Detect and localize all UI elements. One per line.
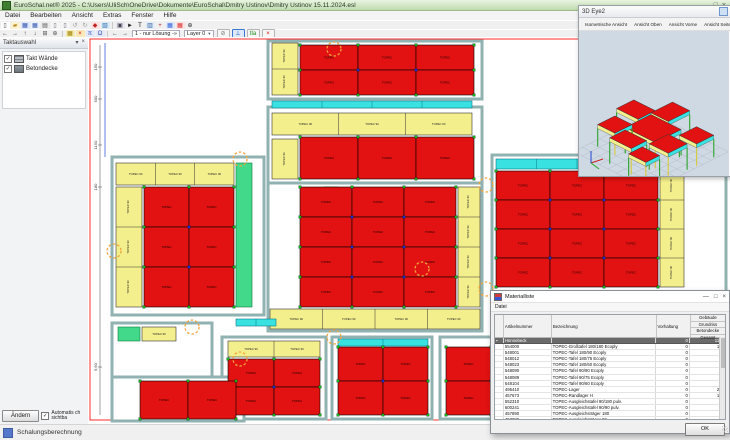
material-list-dialog: Materialliste — □ × Datei Artikelnummer … (490, 290, 730, 434)
svg-text:TOPEC: TOPEC (425, 290, 436, 294)
node-marker (351, 216, 354, 219)
node-marker (139, 418, 142, 421)
node-marker (603, 199, 606, 202)
edge-panel-strip[interactable]: TOPEC 90TOPEC 90 (272, 43, 298, 95)
view-button-3[interactable]: Ansicht Seite (701, 20, 730, 29)
node-marker (357, 44, 360, 47)
dialog-menu-datei[interactable]: Datei (495, 304, 507, 310)
node-marker (299, 136, 302, 139)
svg-text:TOPEC: TOPEC (440, 156, 451, 160)
svg-text:TOPEC: TOPEC (463, 362, 474, 366)
node-marker (351, 306, 354, 309)
edge-panel-strip[interactable]: TOPEC 90TOPEC 90TOPEC 90TOPEC 90 (270, 309, 480, 329)
svg-text:TOPEC: TOPEC (518, 213, 529, 217)
svg-text:TOPEC 90: TOPEC 90 (395, 317, 409, 321)
filler-strip[interactable] (236, 319, 276, 326)
svg-text:TOPEC 90: TOPEC 90 (244, 347, 258, 351)
svg-text:TOPEC 90: TOPEC 90 (669, 265, 673, 279)
svg-text:TOPEC: TOPEC (400, 396, 411, 400)
node-marker (473, 94, 476, 97)
node-marker (188, 226, 191, 229)
wall-icon (14, 55, 24, 63)
node-marker (319, 358, 322, 361)
svg-text:1150: 1150 (93, 140, 98, 149)
close-icon[interactable]: × (81, 39, 85, 46)
menu-fenster[interactable]: Fenster (126, 12, 158, 19)
node-marker (233, 306, 236, 309)
table-row[interactable]: 457880TOPEC-Ausgleichsträger 90024 (495, 417, 725, 420)
resize-grip[interactable] (722, 426, 728, 432)
svg-text:TOPEC 90: TOPEC 90 (208, 172, 222, 176)
svg-text:150: 150 (93, 63, 98, 70)
edge-panel-strip[interactable]: TOPEC 90 (142, 327, 176, 341)
node-marker (473, 69, 476, 72)
node-marker (473, 44, 476, 47)
sidebar-item-slab[interactable]: ✓Betondecke (4, 64, 84, 74)
node-marker (233, 226, 236, 229)
node-marker (299, 178, 302, 181)
node-marker (357, 136, 360, 139)
menu-ansicht[interactable]: Ansicht (67, 12, 98, 19)
node-marker (351, 246, 354, 249)
node-marker (549, 228, 552, 231)
slab-icon (14, 65, 24, 73)
node-marker (657, 286, 660, 289)
edge-panel-strip[interactable]: TOPEC 90TOPEC 90TOPEC 90 (116, 187, 142, 307)
node-marker (549, 257, 552, 260)
node-marker (445, 380, 448, 383)
menu-bearbeiten[interactable]: Bearbeiten (25, 12, 66, 19)
node-marker (455, 246, 458, 249)
takt-panel: Taktauswahl ▾ × ✓Takt Wände✓Betondecke Ä… (0, 37, 89, 424)
node-marker (427, 380, 430, 383)
node-marker (319, 414, 322, 417)
filler-strip[interactable] (272, 101, 472, 108)
takt-panel-title: Taktauswahl (3, 40, 36, 46)
material-dialog-title: Materialliste (505, 294, 534, 300)
material-table-body: ▪Hünnebeck01195554000TOPEC-Großtafel 180… (495, 338, 725, 420)
slab-panel-grid[interactable]: TOPECTOPECTOPEC (299, 136, 476, 181)
dialog-maximize-button[interactable]: □ (714, 294, 718, 300)
node-marker (299, 246, 302, 249)
node-marker (403, 306, 406, 309)
svg-text:TOPEC: TOPEC (207, 398, 218, 402)
node-marker (357, 69, 360, 72)
node-marker (495, 170, 498, 173)
svg-text:TOPEC: TOPEC (161, 285, 172, 289)
view-button-2[interactable]: Ansicht Vorne (666, 20, 700, 29)
svg-text:TOPEC: TOPEC (572, 271, 583, 275)
edge-panel-strip[interactable]: TOPEC 90TOPEC 90TOPEC 90 (116, 163, 234, 185)
node-marker (143, 226, 146, 229)
svg-text:TOPEC: TOPEC (425, 200, 436, 204)
svg-text:TOPEC: TOPEC (382, 156, 393, 160)
svg-text:TOPEC: TOPEC (355, 362, 366, 366)
col-artikelnummer[interactable]: Artikelnummer (504, 315, 552, 337)
slab-panel-grid[interactable]: TOPECTOPEC (139, 380, 238, 421)
svg-text:TOPEC: TOPEC (400, 362, 411, 366)
takt-panel-header[interactable]: Taktauswahl ▾ × (0, 37, 88, 49)
material-dialog-icon (494, 293, 502, 301)
sidebar-item-wall[interactable]: ✓Takt Wände (4, 54, 84, 64)
svg-text:TOPEC: TOPEC (518, 184, 529, 188)
svg-text:TOPEC: TOPEC (321, 290, 332, 294)
svg-text:TOPEC: TOPEC (321, 260, 332, 264)
auto-visible-checkbox[interactable]: ✓ (41, 412, 49, 420)
node-marker (495, 228, 498, 231)
svg-text:TOPEC: TOPEC (161, 245, 172, 249)
node-marker (233, 186, 236, 189)
node-marker (227, 358, 230, 361)
node-marker (455, 306, 458, 309)
edge-panel-strip[interactable]: TOPEC 90TOPEC 90TOPEC 90 (272, 113, 472, 135)
node-marker (273, 386, 276, 389)
svg-text:TOPEC: TOPEC (324, 156, 335, 160)
node-marker (657, 199, 660, 202)
node-marker (143, 306, 146, 309)
svg-text:TOPEC 90: TOPEC 90 (152, 332, 166, 336)
node-marker (495, 199, 498, 202)
slab-panel-grid[interactable]: TOPECTOPECTOPECTOPECTOPECTOPEC (299, 44, 476, 97)
svg-text:TOPEC: TOPEC (321, 230, 332, 234)
dialog-minimize-button[interactable]: — (703, 294, 709, 300)
svg-text:TOPEC: TOPEC (382, 56, 393, 60)
edge-panel-strip[interactable]: TOPEC 90TOPEC 90TOPEC 90TOPEC 90 (458, 187, 480, 307)
node-marker (235, 380, 238, 383)
menu-datei[interactable]: Datei (0, 12, 25, 19)
node-marker (299, 306, 302, 309)
svg-text:TOPEC: TOPEC (246, 371, 257, 375)
auto-visible-label: Automatis ch sichtba (51, 411, 85, 422)
table-scrollbar[interactable] (719, 337, 725, 419)
node-marker (549, 170, 552, 173)
svg-text:TOPEC: TOPEC (206, 285, 217, 289)
takt-checkbox[interactable]: ✓ (4, 65, 12, 73)
node-marker (299, 44, 302, 47)
node-marker (319, 386, 322, 389)
svg-text:TOPEC 90: TOPEC 90 (365, 122, 379, 126)
viewer-3d-scene[interactable] (579, 31, 729, 176)
svg-text:TOPEC 90: TOPEC 90 (126, 200, 130, 214)
svg-text:TOPEC: TOPEC (373, 230, 384, 234)
svg-text:TOPEC 90: TOPEC 90 (669, 236, 673, 250)
node-marker (233, 266, 236, 269)
svg-text:TOPEC: TOPEC (355, 396, 366, 400)
pin-icon[interactable]: ▾ (75, 39, 78, 46)
node-marker (188, 306, 191, 309)
node-marker (382, 346, 385, 349)
node-marker (187, 418, 190, 421)
node-marker (657, 257, 660, 260)
node-marker (273, 358, 276, 361)
svg-text:TOPEC: TOPEC (572, 213, 583, 217)
svg-text:TOPEC: TOPEC (161, 205, 172, 209)
svg-text:TOPEC: TOPEC (324, 56, 335, 60)
svg-text:TOPEC: TOPEC (425, 230, 436, 234)
node-marker (657, 228, 660, 231)
node-marker (351, 186, 354, 189)
slab-panel-grid[interactable]: TOPECTOPECTOPECTOPECTOPECTOPECTOPECTOPEC… (495, 170, 660, 289)
svg-text:TOPEC: TOPEC (626, 242, 637, 246)
svg-text:TOPEC 90: TOPEC 90 (126, 240, 130, 254)
svg-text:TOPEC: TOPEC (626, 184, 637, 188)
svg-text:TOPEC: TOPEC (159, 398, 170, 402)
view-button-0[interactable]: Isometrische Ansicht (582, 20, 630, 29)
svg-text:TOPEC: TOPEC (572, 242, 583, 246)
svg-text:TOPEC: TOPEC (324, 81, 335, 85)
menu-hilfe[interactable]: Hilfe (158, 12, 181, 19)
svg-text:TOPEC: TOPEC (382, 81, 393, 85)
green-panel[interactable] (118, 327, 140, 341)
menu-extras[interactable]: Extras (98, 12, 126, 19)
node-marker (549, 199, 552, 202)
node-marker (299, 186, 302, 189)
svg-text:TOPEC 90: TOPEC 90 (282, 49, 286, 63)
status-icon (3, 428, 13, 438)
green-panel[interactable] (236, 163, 252, 307)
svg-text:TOPEC: TOPEC (292, 399, 303, 403)
node-marker (337, 414, 340, 417)
node-marker (455, 216, 458, 219)
svg-text:TOPEC 90: TOPEC 90 (447, 317, 461, 321)
node-marker (188, 266, 191, 269)
svg-text:TOPEC 90: TOPEC 90 (466, 195, 470, 209)
svg-text:TOPEC: TOPEC (321, 200, 332, 204)
node-marker (382, 414, 385, 417)
node-marker (403, 216, 406, 219)
svg-text:TOPEC 90: TOPEC 90 (282, 152, 286, 166)
node-marker (143, 186, 146, 189)
node-marker (382, 380, 385, 383)
slab-panel-grid[interactable]: TOPECTOPECTOPECTOPECTOPECTOPEC (143, 186, 236, 309)
svg-text:TOPEC: TOPEC (246, 399, 257, 403)
app-icon (2, 1, 11, 10)
node-marker (473, 178, 476, 181)
svg-text:TOPEC: TOPEC (373, 260, 384, 264)
svg-text:TOPEC 90: TOPEC 90 (126, 280, 130, 294)
svg-text:TOPEC: TOPEC (626, 213, 637, 217)
node-marker (445, 414, 448, 417)
node-marker (495, 257, 498, 260)
change-button[interactable]: Ändern (2, 410, 39, 422)
node-marker (403, 246, 406, 249)
svg-text:TOPEC 90: TOPEC 90 (669, 207, 673, 221)
node-marker (603, 257, 606, 260)
svg-text:TOPEC 90: TOPEC 90 (299, 122, 313, 126)
svg-text:TOPEC: TOPEC (206, 205, 217, 209)
svg-text:TOPEC 90: TOPEC 90 (282, 75, 286, 89)
svg-text:TOPEC 90: TOPEC 90 (466, 255, 470, 269)
ok-button[interactable]: OK (685, 423, 725, 436)
node-marker (427, 346, 430, 349)
toolbar-separator (112, 22, 113, 29)
node-marker (415, 136, 418, 139)
svg-text:TOPEC: TOPEC (518, 271, 529, 275)
node-marker (299, 276, 302, 279)
status-text: Schalungsberechnung (17, 429, 82, 436)
slab-panel-grid[interactable]: TOPECTOPECTOPECTOPEC (337, 346, 430, 417)
node-marker (427, 414, 430, 417)
viewer-3d-corner-button[interactable] (719, 7, 728, 16)
node-marker (337, 380, 340, 383)
node-marker (473, 136, 476, 139)
node-marker (299, 69, 302, 72)
svg-text:TOPEC: TOPEC (440, 81, 451, 85)
node-marker (415, 94, 418, 97)
node-marker (403, 276, 406, 279)
view-button-1[interactable]: Ansicht Oben (631, 20, 665, 29)
node-marker (455, 186, 458, 189)
node-marker (273, 414, 276, 417)
material-table-header: Artikelnummer Bezeichnung Vorhaltung Geb… (495, 315, 725, 338)
takt-checkbox[interactable]: ✓ (4, 55, 12, 63)
col-gebaeude-stack[interactable]: Gebäude Grundriss Betondecke Gesamt (691, 315, 725, 337)
svg-text:TOPEC 90: TOPEC 90 (342, 317, 356, 321)
svg-text:TOPEC 90: TOPEC 90 (290, 317, 304, 321)
svg-text:TOPEC 90: TOPEC 90 (290, 347, 304, 351)
node-marker (603, 228, 606, 231)
svg-text:500: 500 (93, 95, 98, 102)
svg-text:TOPEC: TOPEC (373, 200, 384, 204)
svg-text:TOPEC: TOPEC (292, 371, 303, 375)
node-marker (415, 178, 418, 181)
material-dialog-titlebar[interactable]: Materialliste — □ × (491, 291, 729, 303)
node-marker (603, 286, 606, 289)
node-marker (188, 186, 191, 189)
takt-tree: ✓Takt Wände✓Betondecke (2, 51, 86, 109)
svg-text:TOPEC 90: TOPEC 90 (168, 172, 182, 176)
svg-text:180: 180 (93, 183, 98, 190)
app-title: EuroSchal.net® 2025 - C:\Users\UliSch\On… (14, 2, 356, 9)
col-vorhaltung[interactable]: Vorhaltung (657, 315, 691, 337)
node-marker (415, 44, 418, 47)
viewer-3d-window: 3D Eye2 Isometrische AnsichtAnsicht Oben… (578, 5, 730, 177)
node-marker (495, 286, 498, 289)
node-marker (299, 216, 302, 219)
svg-text:TOPEC 90: TOPEC 90 (466, 285, 470, 299)
node-marker (187, 380, 190, 383)
edge-panel-strip[interactable]: TOPEC 90 (272, 139, 298, 179)
edge-panel-strip[interactable]: TOPEC 90TOPEC 90TOPEC 90TOPEC 90 (660, 171, 684, 287)
node-marker (357, 178, 360, 181)
svg-text:TOPEC: TOPEC (626, 271, 637, 275)
node-marker (403, 186, 406, 189)
svg-text:TOPEC 90: TOPEC 90 (466, 225, 470, 239)
dialog-close-button[interactable]: × (722, 294, 726, 300)
edge-panel-strip[interactable]: TOPEC 90TOPEC 90 (228, 341, 320, 357)
svg-text:TOPEC: TOPEC (518, 242, 529, 246)
node-marker (337, 346, 340, 349)
svg-text:TOPEC: TOPEC (572, 184, 583, 188)
svg-text:TOPEC: TOPEC (373, 290, 384, 294)
node-marker (455, 276, 458, 279)
node-marker (235, 418, 238, 421)
slab-panel-grid[interactable]: TOPECTOPECTOPECTOPECTOPECTOPECTOPECTOPEC… (299, 186, 458, 309)
viewer-3d-toolbar: Isometrische AnsichtAnsicht ObenAnsicht … (579, 18, 730, 31)
dimension-ruler: 15050011501809,60 (93, 43, 105, 415)
app-window: { "window":{ "title":"EuroSchal.net® 202… (0, 0, 730, 439)
material-table: Artikelnummer Bezeichnung Vorhaltung Geb… (494, 314, 726, 420)
svg-text:TOPEC: TOPEC (440, 56, 451, 60)
svg-text:TOPEC: TOPEC (463, 396, 474, 400)
svg-text:9,60: 9,60 (93, 362, 98, 371)
node-marker (143, 266, 146, 269)
node-marker (445, 346, 448, 349)
viewer-3d-titlebar[interactable]: 3D Eye2 (579, 6, 730, 18)
svg-text:TOPEC 90: TOPEC 90 (432, 122, 446, 126)
filler-strip[interactable] (338, 339, 428, 346)
col-bezeichnung[interactable]: Bezeichnung (552, 315, 657, 337)
svg-text:TOPEC: TOPEC (206, 245, 217, 249)
svg-text:TOPEC 90: TOPEC 90 (129, 172, 143, 176)
node-marker (357, 94, 360, 97)
node-marker (299, 94, 302, 97)
node-marker (549, 286, 552, 289)
node-marker (351, 276, 354, 279)
node-marker (139, 380, 142, 383)
node-marker (415, 69, 418, 72)
viewer-3d-title: 3D Eye2 (582, 9, 605, 15)
